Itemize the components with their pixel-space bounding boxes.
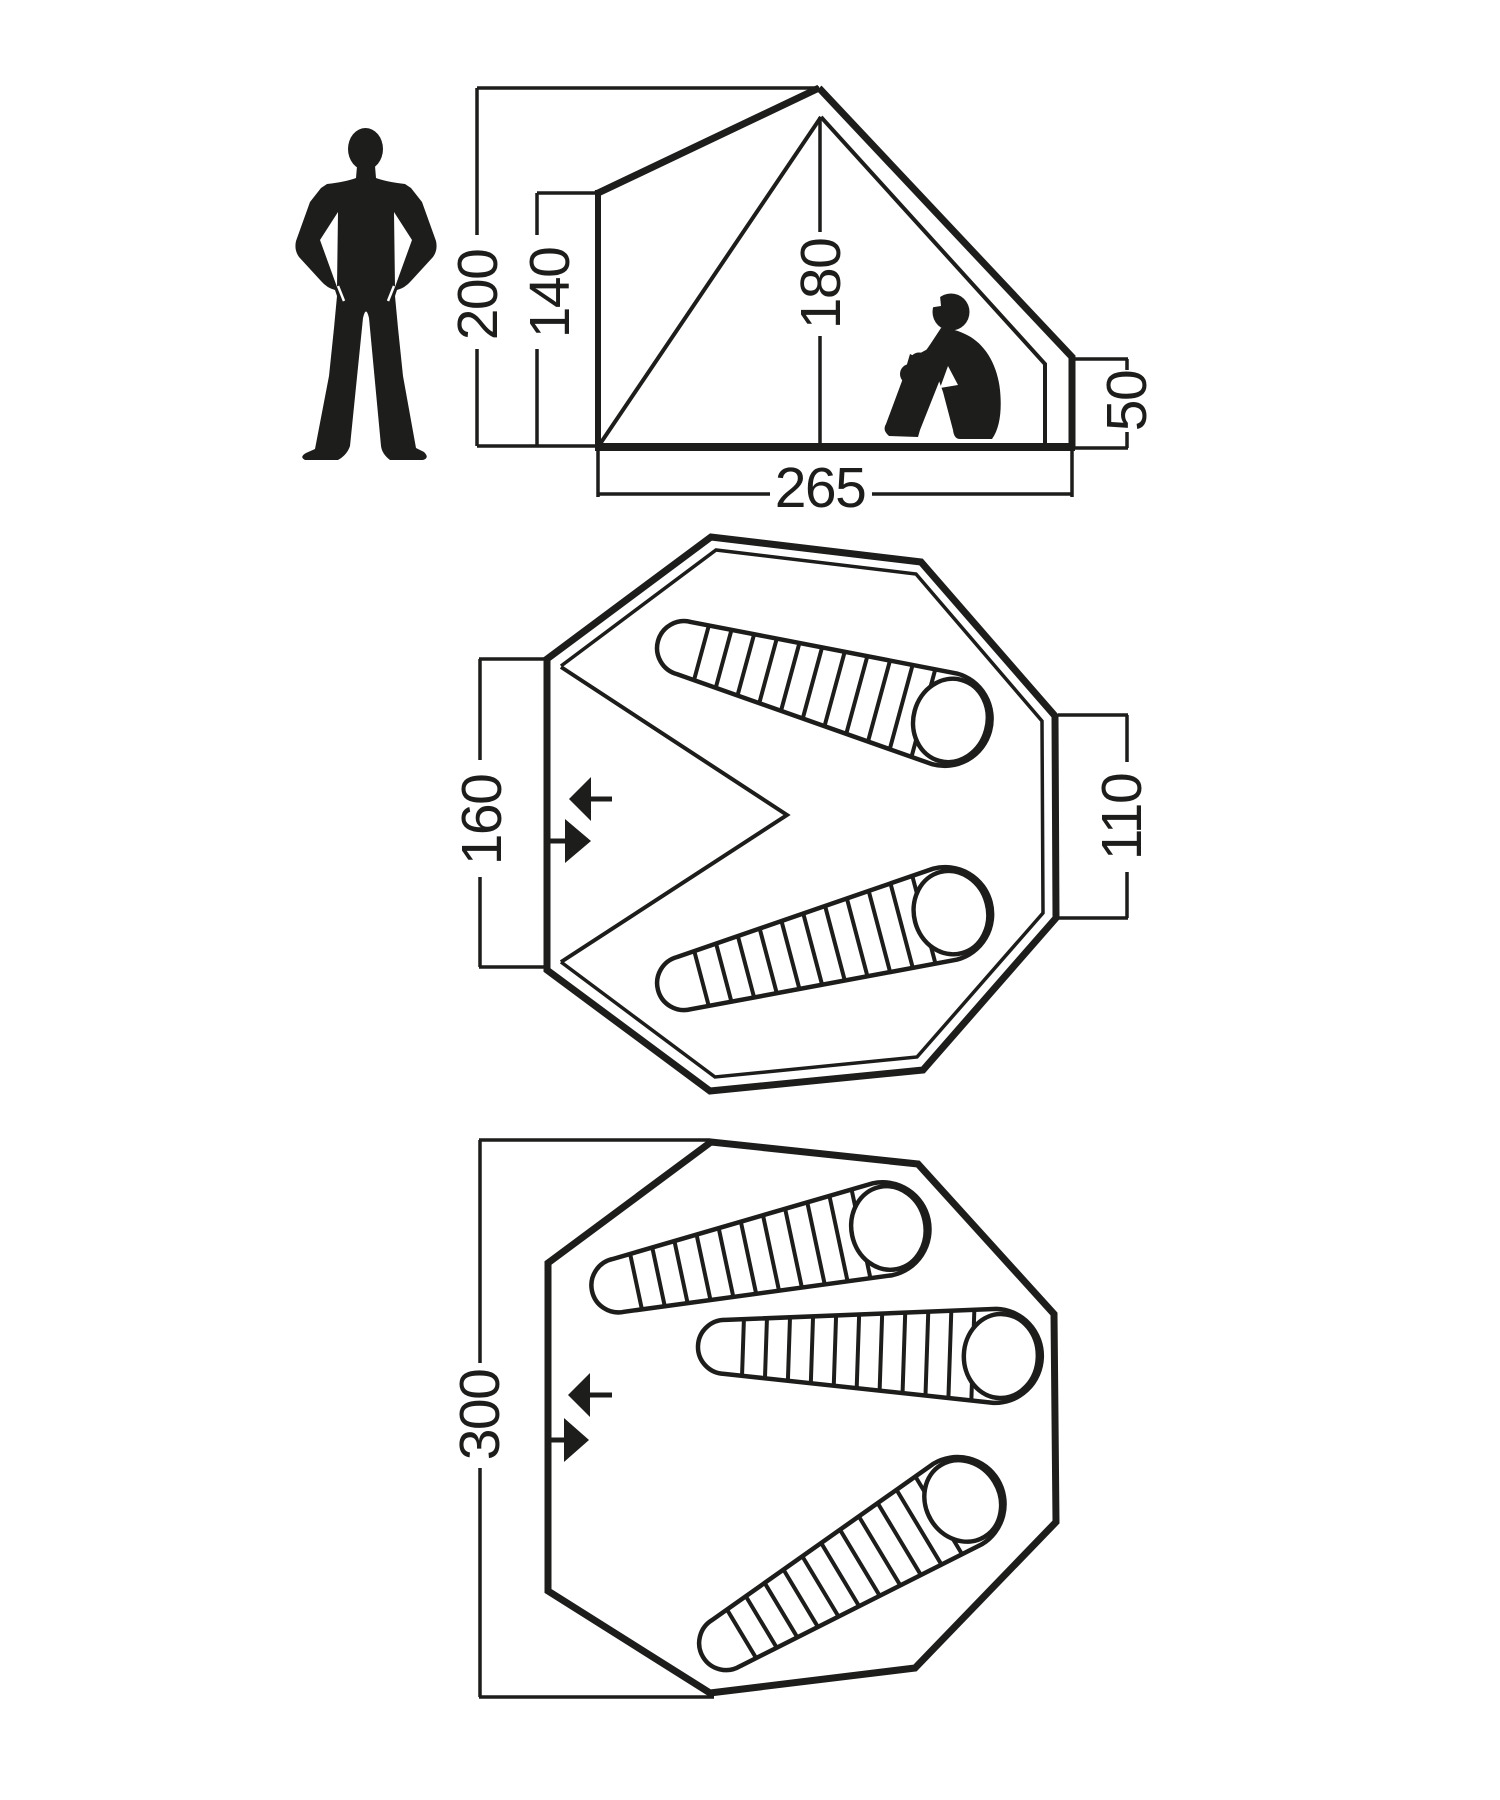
svg-text:110: 110 [1090, 774, 1154, 860]
svg-text:200: 200 [446, 250, 510, 341]
svg-text:265: 265 [775, 456, 866, 520]
svg-text:50: 50 [1095, 371, 1159, 431]
svg-text:160: 160 [450, 775, 514, 866]
svg-text:140: 140 [518, 248, 582, 339]
svg-text:180: 180 [789, 239, 853, 330]
svg-text:300: 300 [448, 1370, 512, 1461]
